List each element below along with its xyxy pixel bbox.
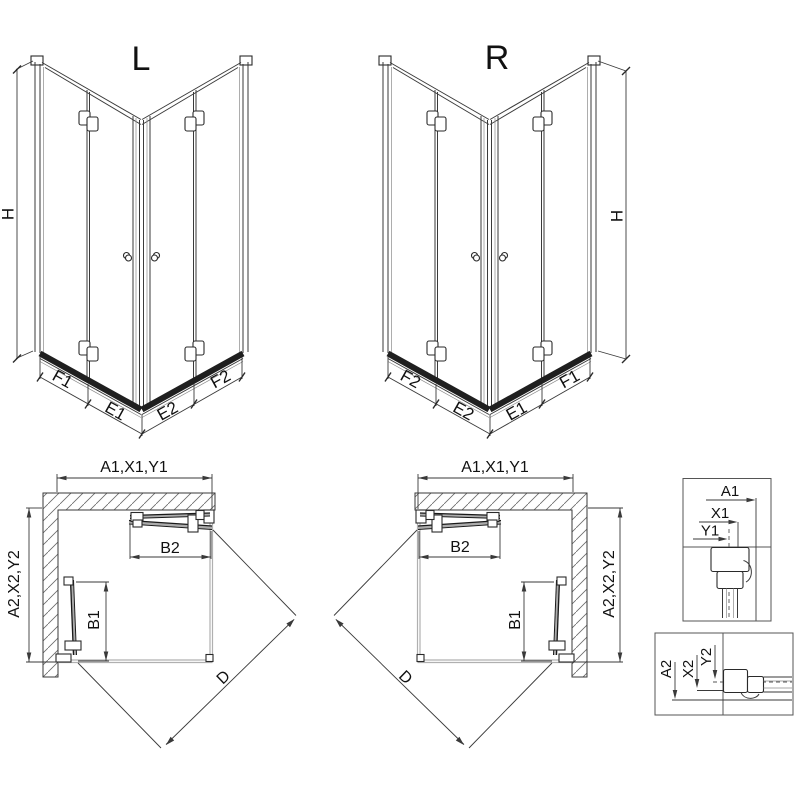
door-depth-label-b1: B1 (507, 610, 524, 630)
door-width-label-b2: B2 (450, 539, 470, 556)
width-dimension-label: A1,X1,Y1 (100, 459, 168, 476)
height-dimension-label: H (607, 210, 626, 222)
variant-title-right: R (485, 39, 510, 77)
detail-label-x1: X1 (711, 505, 729, 522)
height-dimension-label: H (0, 208, 17, 220)
depth-dimension-label: A2,X2,Y2 (6, 550, 23, 618)
detail-label-y2: Y2 (698, 648, 715, 666)
detail-label-x2: X2 (680, 660, 697, 678)
drawing-sheet: L H F1 E1 E2 F2 R H F2 E2 E1 F1 A1,X1,Y1… (0, 0, 800, 800)
depth-dimension-label: A2,X2,Y2 (601, 550, 618, 618)
detail-label-a1: A1 (721, 483, 739, 500)
variant-title-left: L (132, 40, 151, 78)
door-depth-label-b1: B1 (86, 610, 103, 630)
shower-enclosure-technical-drawing: L H F1 E1 E2 F2 R H F2 E2 E1 F1 A1,X1,Y1… (0, 0, 800, 800)
width-dimension-label: A1,X1,Y1 (461, 459, 529, 476)
door-width-label-b2: B2 (160, 540, 180, 557)
detail-label-a2: A2 (658, 660, 675, 678)
detail-label-y1: Y1 (701, 522, 719, 539)
